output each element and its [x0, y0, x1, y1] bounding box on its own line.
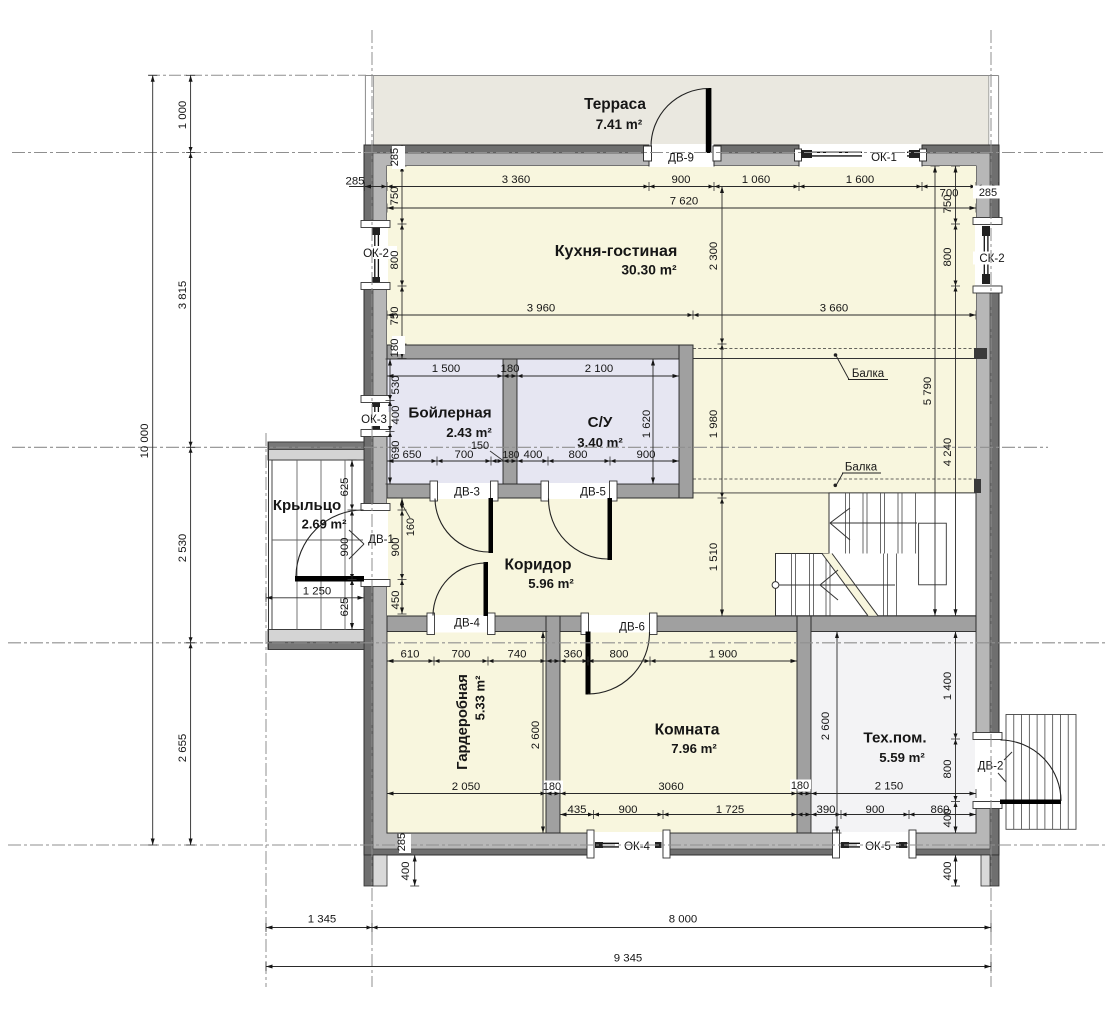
- svg-text:3 660: 3 660: [820, 303, 849, 315]
- svg-text:180: 180: [500, 363, 519, 375]
- svg-text:5.59 m²: 5.59 m²: [879, 750, 925, 765]
- svg-text:800: 800: [609, 649, 628, 661]
- svg-text:Бойлерная: Бойлерная: [408, 405, 491, 422]
- svg-text:700: 700: [451, 649, 470, 661]
- svg-text:2 600: 2 600: [820, 712, 832, 741]
- svg-text:ДВ-4: ДВ-4: [454, 618, 480, 630]
- svg-text:860: 860: [930, 804, 949, 816]
- svg-text:2.69 m²: 2.69 m²: [302, 517, 347, 532]
- svg-text:ОК-3: ОК-3: [361, 414, 387, 426]
- svg-text:1 500: 1 500: [432, 363, 461, 375]
- svg-text:2 600: 2 600: [530, 721, 542, 750]
- svg-text:ДВ-5: ДВ-5: [580, 487, 606, 499]
- svg-text:Комната: Комната: [655, 722, 720, 739]
- svg-text:285: 285: [979, 187, 997, 199]
- svg-text:Балка: Балка: [845, 462, 878, 474]
- svg-text:2 530: 2 530: [177, 534, 189, 563]
- svg-text:ОК-5: ОК-5: [865, 841, 891, 853]
- svg-text:625: 625: [339, 477, 351, 496]
- svg-text:Крыльцо: Крыльцо: [273, 497, 341, 514]
- svg-text:2 150: 2 150: [875, 781, 904, 793]
- svg-text:1 620: 1 620: [641, 410, 653, 439]
- svg-text:285: 285: [396, 833, 408, 851]
- svg-text:390: 390: [816, 804, 835, 816]
- svg-text:900: 900: [671, 174, 690, 186]
- svg-text:750: 750: [389, 186, 401, 205]
- svg-text:180: 180: [389, 338, 401, 357]
- svg-text:3 360: 3 360: [502, 174, 531, 186]
- svg-text:750: 750: [389, 306, 401, 325]
- svg-text:4 240: 4 240: [942, 438, 954, 467]
- svg-text:2 300: 2 300: [708, 242, 720, 271]
- svg-text:400: 400: [400, 861, 412, 880]
- svg-text:2 100: 2 100: [585, 363, 614, 375]
- svg-text:8 000: 8 000: [669, 914, 698, 926]
- svg-text:360: 360: [563, 649, 582, 661]
- svg-text:3060: 3060: [658, 781, 683, 793]
- svg-text:180: 180: [543, 781, 561, 793]
- svg-text:1 060: 1 060: [742, 174, 771, 186]
- svg-text:5 790: 5 790: [922, 377, 934, 406]
- svg-text:1 250: 1 250: [303, 586, 332, 598]
- svg-text:900: 900: [390, 537, 402, 556]
- svg-text:Терраса: Терраса: [584, 96, 646, 113]
- svg-text:160: 160: [405, 518, 417, 536]
- svg-text:Кухня-гостиная: Кухня-гостиная: [555, 243, 678, 260]
- svg-text:3 960: 3 960: [527, 303, 556, 315]
- svg-text:740: 740: [507, 649, 526, 661]
- svg-text:С/У: С/У: [588, 414, 613, 431]
- svg-text:7 620: 7 620: [670, 196, 699, 208]
- svg-text:5.33 m²: 5.33 m²: [473, 675, 488, 720]
- svg-text:400: 400: [390, 405, 402, 424]
- svg-text:150: 150: [471, 440, 489, 452]
- svg-text:10 000: 10 000: [139, 424, 151, 459]
- svg-text:ДВ-6: ДВ-6: [619, 622, 645, 634]
- svg-text:800: 800: [389, 250, 401, 269]
- svg-text:Коридор: Коридор: [504, 557, 571, 574]
- svg-text:530: 530: [390, 375, 402, 394]
- svg-text:2.43 m²: 2.43 m²: [446, 425, 492, 440]
- svg-text:9 345: 9 345: [614, 953, 643, 965]
- svg-text:690: 690: [390, 440, 402, 459]
- svg-text:2 655: 2 655: [177, 734, 189, 763]
- svg-text:800: 800: [942, 247, 954, 266]
- svg-text:ДВ-9: ДВ-9: [668, 153, 694, 165]
- svg-text:1 400: 1 400: [942, 672, 954, 701]
- svg-text:2 050: 2 050: [452, 781, 481, 793]
- svg-text:ОК-4: ОК-4: [624, 841, 650, 853]
- svg-text:ОК-1: ОК-1: [871, 152, 897, 164]
- svg-text:Гардеробная: Гардеробная: [455, 674, 471, 770]
- svg-text:285: 285: [345, 176, 364, 188]
- svg-text:Тех.пом.: Тех.пом.: [863, 730, 926, 747]
- svg-text:7.41 m²: 7.41 m²: [596, 117, 643, 132]
- svg-text:7.96 m²: 7.96 m²: [671, 741, 717, 756]
- svg-text:180: 180: [791, 780, 809, 792]
- svg-text:625: 625: [339, 597, 351, 616]
- svg-text:1 725: 1 725: [716, 804, 745, 816]
- svg-text:1 980: 1 980: [708, 410, 720, 439]
- svg-text:ОК-2: ОК-2: [363, 248, 389, 260]
- svg-text:1 510: 1 510: [708, 543, 720, 572]
- svg-text:610: 610: [400, 649, 419, 661]
- svg-text:900: 900: [339, 537, 351, 556]
- svg-text:3 815: 3 815: [177, 281, 189, 310]
- svg-text:5.96 m²: 5.96 m²: [528, 576, 574, 591]
- svg-text:1 000: 1 000: [177, 101, 189, 130]
- svg-text:30.30 m²: 30.30 m²: [621, 263, 677, 278]
- svg-text:1 900: 1 900: [709, 649, 738, 661]
- svg-text:СК-2: СК-2: [979, 253, 1004, 265]
- svg-text:400: 400: [942, 861, 954, 880]
- svg-text:Балка: Балка: [852, 368, 885, 380]
- svg-text:450: 450: [390, 590, 402, 609]
- svg-text:435: 435: [567, 804, 586, 816]
- svg-text:400: 400: [523, 449, 542, 461]
- svg-text:750: 750: [942, 194, 954, 213]
- svg-text:900: 900: [865, 804, 884, 816]
- svg-text:650: 650: [402, 449, 421, 461]
- svg-text:1 345: 1 345: [308, 914, 337, 926]
- svg-text:1 600: 1 600: [846, 174, 875, 186]
- svg-text:800: 800: [942, 759, 954, 778]
- svg-text:180: 180: [503, 450, 520, 461]
- svg-text:285: 285: [389, 148, 401, 166]
- svg-text:ДВ-3: ДВ-3: [454, 487, 480, 499]
- svg-text:900: 900: [618, 804, 637, 816]
- svg-text:800: 800: [568, 449, 587, 461]
